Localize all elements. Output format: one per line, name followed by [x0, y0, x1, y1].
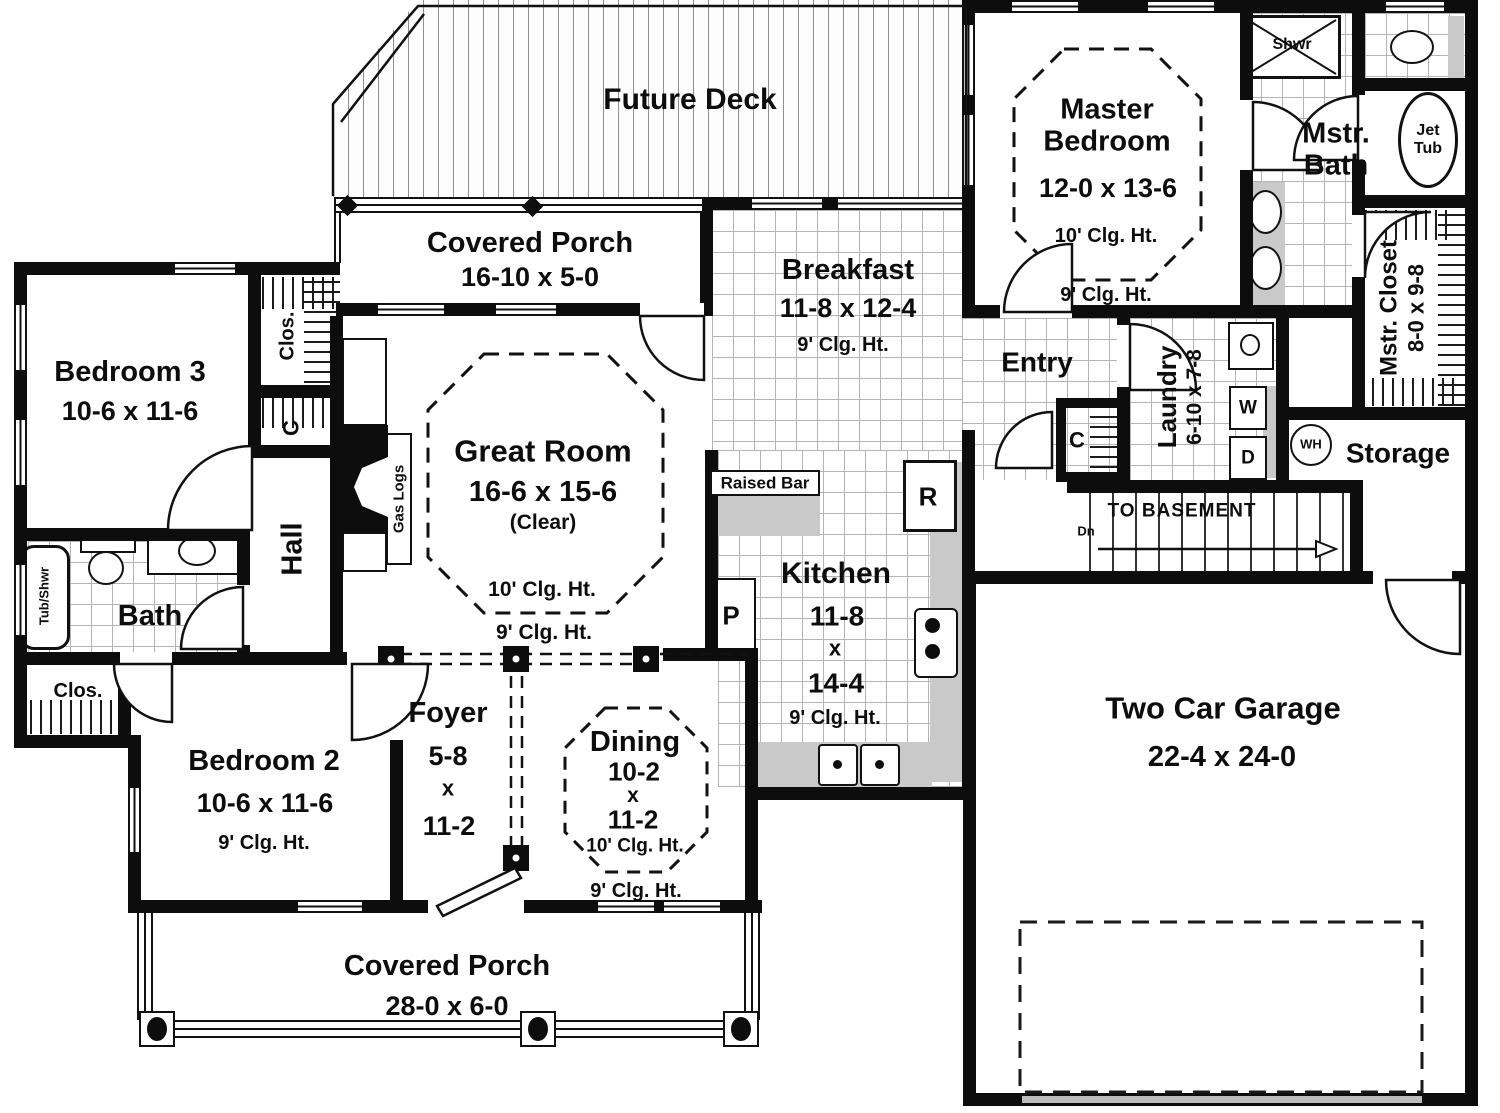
covered-porch-top-label: Covered Porch	[427, 227, 633, 259]
entry-closet-label: C	[1069, 429, 1085, 454]
kitchen-dims-w: 11-8	[810, 600, 865, 631]
garage-door-swing	[1386, 580, 1460, 654]
great-room-ceiling-inner: 10' Clg. Ht.	[488, 578, 596, 602]
closet2-door	[114, 664, 172, 722]
dining-dims-w: 10-2	[608, 757, 660, 786]
breakfast-ceiling: 9' Clg. Ht.	[797, 334, 888, 356]
master-bedroom-dims: 12-0 x 13-6	[1039, 173, 1177, 203]
bath-label: Bath	[118, 600, 182, 632]
stairs-direction-arrow	[1098, 541, 1336, 557]
master-bedroom-ceiling-inner: 10' Clg. Ht.	[1055, 225, 1158, 247]
kitchen-dims-h: 14-4	[808, 667, 864, 698]
dining-ceiling-inner: 10' Clg. Ht.	[586, 835, 683, 856]
entry-closet-door	[996, 412, 1052, 468]
bedroom2-ceiling: 9' Clg. Ht.	[218, 832, 309, 854]
breakfast-dims: 11-8 x 12-4	[780, 293, 917, 323]
front-door-leaf	[437, 868, 521, 916]
master-closet-label: Mstr. Closet8-0 x 9-8	[1376, 240, 1429, 376]
garage-label: Two Car Garage	[1105, 692, 1340, 727]
hall-label: Hall	[276, 522, 309, 575]
fireplace	[330, 425, 388, 533]
bedroom3-dims: 10-6 x 11-6	[62, 396, 199, 426]
stairs-down-label: Dn	[1077, 525, 1094, 540]
great-room-label: Great Room	[454, 435, 631, 470]
dining-label: Dining	[590, 726, 680, 758]
breakfast-label: Breakfast	[782, 254, 914, 286]
porch-great-room-door	[640, 316, 704, 380]
gas-logs-label: Gas Logs	[390, 465, 407, 533]
tub-shower-label: Tub/Shwr	[38, 567, 53, 625]
master-bedroom-label: Master Bedroom	[1022, 94, 1192, 159]
great-room-ceiling: 9' Clg. Ht.	[496, 621, 592, 645]
bedroom3-closet-label: Clos.	[277, 312, 300, 361]
laundry-label: Laundry6-10 x 7-8	[1153, 346, 1207, 449]
dryer-label: D	[1241, 447, 1255, 468]
hall-closet-label: C	[278, 420, 303, 436]
master-bath-label: Mstr. Bath	[1281, 118, 1391, 183]
covered-porch-bottom-label: Covered Porch	[344, 950, 550, 982]
bedroom2-closet-label: Clos.	[54, 680, 103, 702]
garage-dashed-area	[1020, 922, 1422, 1092]
foyer-dims-w: 5-8	[428, 741, 467, 771]
bedroom2-label: Bedroom 2	[188, 745, 339, 777]
covered-porch-top-dims: 16-10 x 5-0	[461, 262, 599, 292]
entry-label: Entry	[1001, 346, 1073, 377]
kitchen-dims-x: x	[829, 637, 841, 662]
great-room-dims: 16-6 x 15-6	[469, 476, 617, 508]
great-room-clear: (Clear)	[510, 511, 577, 535]
kitchen-ceiling: 9' Clg. Ht.	[789, 707, 880, 729]
water-heater-label: WH	[1300, 438, 1322, 453]
bedroom3-label: Bedroom 3	[54, 356, 205, 388]
future-deck-label: Future Deck	[603, 83, 776, 117]
bedroom3-door	[168, 446, 252, 530]
foyer-dims-x: x	[442, 777, 454, 802]
bedroom2-dims: 10-6 x 11-6	[197, 788, 334, 818]
bath-door	[181, 587, 243, 649]
kitchen-label: Kitchen	[781, 557, 891, 591]
garage-dims: 22-4 x 24-0	[1148, 741, 1296, 773]
shower-label: Shwr	[1272, 36, 1311, 54]
covered-porch-bottom-dims: 28-0 x 6-0	[385, 991, 508, 1021]
dining-ceiling: 9' Clg. Ht.	[590, 880, 681, 902]
foyer-label: Foyer	[409, 697, 488, 729]
raised-bar-label: Raised Bar	[721, 473, 810, 492]
dining-dims-h: 11-2	[608, 805, 659, 834]
pantry-label: P	[722, 601, 739, 630]
fridge-label: R	[919, 482, 938, 511]
jet-tub-label: JetTub	[1414, 122, 1442, 158]
to-basement-label: TO BASEMENT	[1108, 500, 1257, 521]
master-bedroom-ceiling: 9' Clg. Ht.	[1060, 284, 1151, 306]
washer-label: W	[1239, 397, 1257, 418]
floor-plan: Future Deck Covered Porch 16-10 x 5-0 Br…	[0, 0, 1500, 1113]
plan-linework	[0, 0, 1500, 1113]
storage-label: Storage	[1346, 437, 1450, 468]
foyer-dims-h: 11-2	[423, 811, 476, 841]
